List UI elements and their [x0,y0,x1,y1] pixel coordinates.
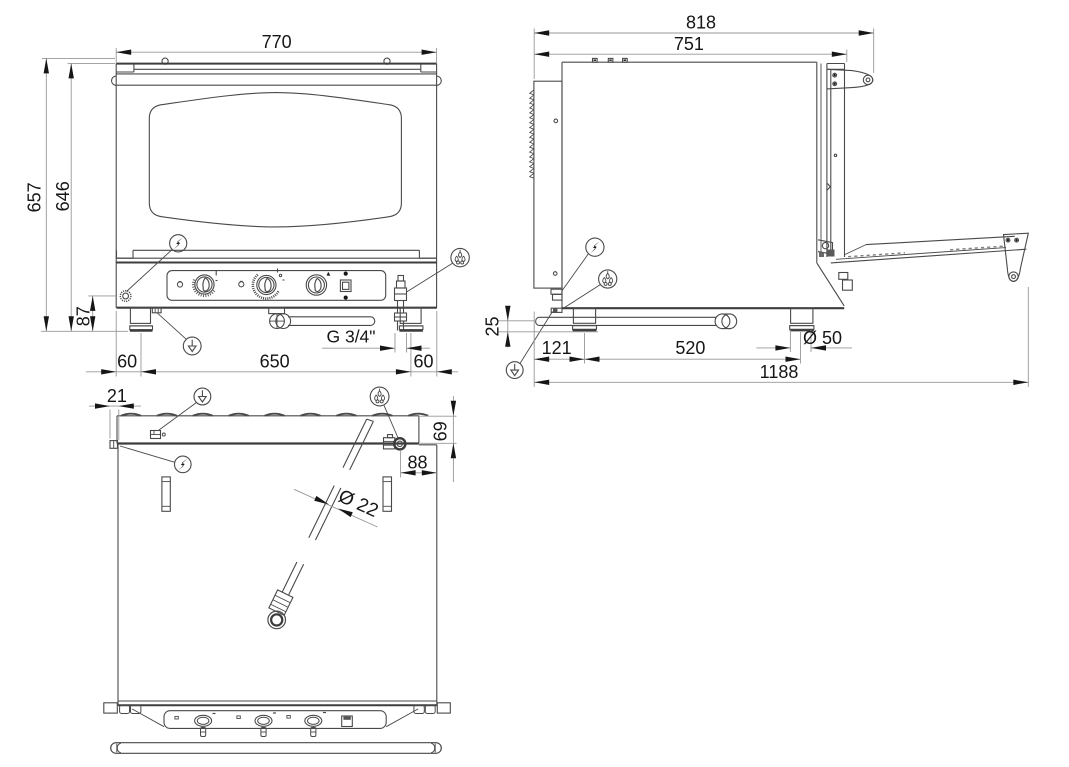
svg-text:60: 60 [413,352,433,372]
svg-text:657: 657 [25,182,45,212]
svg-text:1188: 1188 [760,362,799,382]
svg-text:770: 770 [262,32,292,52]
svg-text:520: 520 [675,338,705,358]
svg-text:751: 751 [674,34,704,54]
svg-text:87: 87 [74,306,94,326]
svg-text:25: 25 [483,316,503,336]
svg-text:G 3/4": G 3/4" [326,327,375,347]
svg-text:818: 818 [686,13,716,33]
svg-text:21: 21 [107,386,127,406]
svg-text:Ø 50: Ø 50 [803,328,842,348]
svg-text:69: 69 [430,421,450,441]
svg-text:646: 646 [53,181,73,211]
svg-text:121: 121 [542,338,572,358]
svg-text:88: 88 [407,452,427,472]
svg-text:60: 60 [117,352,137,372]
svg-text:650: 650 [260,352,290,372]
